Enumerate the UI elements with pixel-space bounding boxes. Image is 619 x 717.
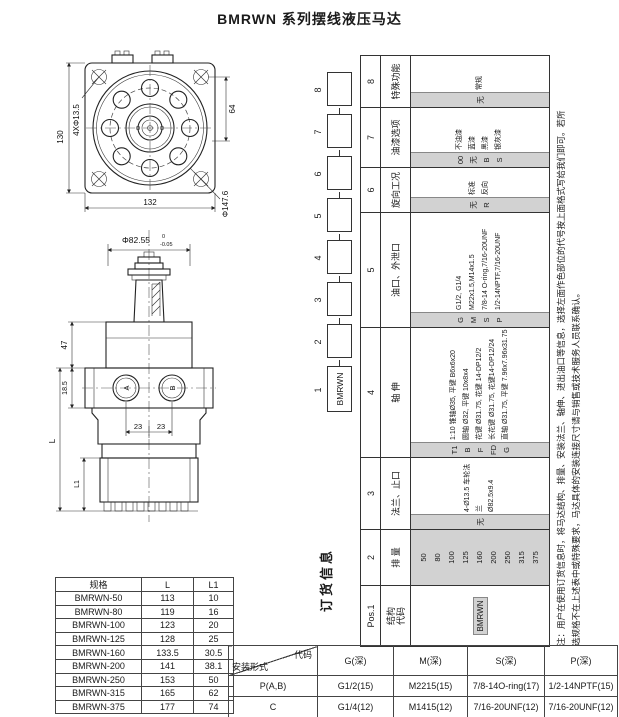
ordering-pos-cell: 4: [361, 328, 381, 457]
spec-model: BMRWN-200: [56, 659, 142, 673]
ordering-pos-cell: 5: [361, 213, 381, 327]
chain-dash: [339, 234, 340, 240]
order-code-box: [327, 114, 352, 148]
ordering-label-cell: 油漆选项: [381, 108, 411, 167]
dim-L: L: [48, 438, 57, 443]
mounting-type: C: [229, 697, 318, 717]
code-value: S: [493, 153, 506, 167]
code-value: B: [480, 153, 493, 167]
spec-row: BMRWN-8011916: [56, 605, 234, 619]
chain-position-number: 7: [313, 115, 323, 149]
code-value: 200: [487, 530, 501, 585]
spec-model: BMRWN-375: [56, 700, 142, 714]
order-code-box: [327, 324, 352, 358]
description-list: 1:10 锥轴Ø35, 平键 B6x6x20圆轴 Ø32, 平键 10x8x4花…: [411, 328, 549, 442]
port-row: CG1/4(12)M1415(12)7/16-20UNF(12)7/16-20U…: [229, 697, 618, 717]
code-description: 长花键 Ø31.75, 花键14-DP12/24: [487, 328, 500, 440]
dim-pilot-tol-upper: 0: [162, 234, 165, 240]
code-description: M22x1.5,M14x1.5: [467, 213, 480, 310]
code-value: FD: [487, 443, 500, 457]
ordering-pos-cell: 6: [361, 168, 381, 212]
dim-pilot-dia: Φ147.6: [221, 190, 230, 217]
spec-row: BMRWN-10012320: [56, 619, 234, 633]
port-size-value: M1415(12): [394, 697, 468, 717]
code-value: 无: [474, 515, 487, 529]
spec-row: BMRWN-31516562: [56, 687, 234, 701]
code-value: 50: [417, 530, 431, 585]
order-code-box: [327, 156, 352, 190]
code-value: P: [493, 313, 506, 327]
code-description: 不油漆: [454, 108, 467, 150]
spec-row: BMRWN-25015350: [56, 673, 234, 687]
code-value: S: [480, 313, 493, 327]
ordering-label-cell: 特殊功能: [381, 56, 411, 107]
code-description: 圆轴 Ø32, 平键 10x8x4: [461, 328, 474, 440]
spec-header-l1: L1: [194, 578, 234, 592]
chain-position-number: 3: [313, 283, 323, 317]
spec-header-row: 规格 L L1: [56, 578, 234, 592]
code-description: 反向: [480, 168, 493, 195]
spec-row: BMRWN-5011310: [56, 592, 234, 606]
port-size-value: M2215(15): [394, 676, 468, 697]
code-strip: 无: [411, 514, 549, 529]
code-value: F: [474, 443, 487, 457]
code-value: 00: [454, 153, 467, 167]
dim-18-5: 18.5: [62, 381, 69, 395]
mounting-type: P(A,B): [229, 676, 318, 697]
code-description: 4-Ø13.5 车轮法兰 Ø82.5x9.4: [462, 458, 498, 512]
code-value: 125: [459, 530, 473, 585]
dim-23-left: 23: [134, 422, 142, 431]
code-value: 160: [473, 530, 487, 585]
code-description: G1/2, G1/4: [454, 213, 467, 310]
dim-23-right: 23: [157, 422, 165, 431]
port-header-m: M(深): [394, 646, 468, 676]
code-description: 标准: [467, 168, 480, 195]
code-list: T1BFFDG: [411, 443, 549, 457]
dim-pilot-value: Φ82.55: [122, 235, 150, 245]
code-description: 直轴 Ø31.75, 平键 7.96x7.96x31.75: [500, 328, 513, 440]
ordering-label-cell: 旋向工况: [381, 168, 411, 212]
ordering-column-8: 8特殊功能无常规: [361, 56, 549, 108]
spec-l1-value: 16: [194, 605, 234, 619]
order-code-box: [327, 72, 352, 106]
ordering-column-2: 2排 量5080100125160200250315375: [361, 530, 549, 586]
top-ports: [112, 51, 173, 63]
code-value: 315: [515, 530, 529, 585]
code-value: 无: [467, 198, 480, 212]
dim-pilot-tol-lower: -0.05: [160, 242, 173, 248]
port-size-value: G1/4(12): [318, 697, 394, 717]
description-list: 不油漆蓝漆黑漆银灰漆: [411, 108, 549, 152]
code-list: 00无BS: [411, 153, 549, 167]
ordering-column-1: Pos.1结构 代码BMRWN: [361, 586, 549, 646]
ordering-section: 订货信息 1BMRWN2345678 Pos.1结构 代码BMRWN2排 量50…: [312, 50, 606, 648]
chain-position-number: 6: [313, 157, 323, 191]
code-value: T1: [448, 443, 461, 457]
ordering-pos-cell: 8: [361, 56, 381, 107]
side-view-drawing: Φ82.55 0 -0.05: [42, 226, 257, 526]
port-row: P(A,B)G1/2(15)M2215(15)7/8-14O-ring(17)1…: [229, 676, 618, 697]
port-size-value: 7/16-20UNF(12): [545, 697, 618, 717]
ordering-label-cell: 油口、外泄口: [381, 213, 411, 327]
dim-pilot: Φ82.55 0 -0.05: [108, 234, 190, 266]
ordering-pos-cell: 3: [361, 458, 381, 529]
ordering-column-5: 5油口、外泄口GMSPG1/2, G1/4M22x1.5,M14x1.57/8-…: [361, 213, 549, 328]
spec-l-value: 177: [142, 700, 194, 714]
spec-model: BMRWN-50: [56, 592, 142, 606]
spec-l1-value: 10: [194, 592, 234, 606]
spec-l-value: 123: [142, 619, 194, 633]
spec-model: BMRWN-80: [56, 605, 142, 619]
ordering-column-7: 7油漆选项00无BS不油漆蓝漆黑漆银灰漆: [361, 108, 549, 168]
spec-l-value: 128: [142, 632, 194, 646]
code-description: 1:10 锥轴Ø35, 平键 B6x6x20: [448, 328, 461, 440]
ordering-label-cell: 结构 代码: [381, 586, 411, 646]
description-list: 常规: [411, 56, 549, 92]
spec-table: 规格 L L1 BMRWN-5011310BMRWN-8011916BMRWN-…: [55, 577, 234, 714]
spec-model: BMRWN-315: [56, 687, 142, 701]
page-title: BMRWN 系列摆线液压马达: [0, 9, 619, 29]
spec-model: BMRWN-160: [56, 646, 142, 660]
ordering-pos-cell: Pos.1: [361, 586, 381, 646]
port-size-value: 7/8-14O-ring(17): [468, 676, 545, 697]
port-header-p: P(深): [545, 646, 618, 676]
port-table-body: 代码 安装形式 G(深) M(深) S(深) P(深) P(A,B)G1/2(1…: [229, 646, 618, 717]
ordering-label-cell: 排 量: [381, 530, 411, 585]
ordering-content-cell: T1BFFDG1:10 锥轴Ø35, 平键 B6x6x20圆轴 Ø32, 平键 …: [411, 328, 549, 457]
ordering-content-cell: 无4-Ø13.5 车轮法兰 Ø82.5x9.4: [411, 458, 549, 529]
code-strip: 00无BS: [411, 152, 549, 167]
ordering-content-cell: BMRWN: [411, 586, 549, 646]
code-list: 无: [411, 515, 549, 529]
code-value: G: [500, 443, 513, 457]
code-strip: T1BFFDG: [411, 442, 549, 457]
port-size-value: G1/2(15): [318, 676, 394, 697]
ordering-column-4: 4轴 伸T1BFFDG1:10 锥轴Ø35, 平键 B6x6x20圆轴 Ø32,…: [361, 328, 549, 458]
chain-position-number: 1: [313, 373, 323, 407]
code-description: 常规: [474, 56, 487, 90]
code-description: 蓝漆: [467, 108, 480, 150]
corner-label-mounting: 安装形式: [232, 660, 268, 673]
spec-row: BMRWN-37517774: [56, 700, 234, 714]
chain-position-number: 2: [313, 325, 323, 359]
spec-l-value: 141: [142, 659, 194, 673]
dim-47: 47: [60, 340, 69, 349]
ordering-content-cell: 00无BS不油漆蓝漆黑漆银灰漆: [411, 108, 549, 167]
order-code-box: [327, 282, 352, 316]
code-value: B: [461, 443, 474, 457]
code-strip: GMSP: [411, 312, 549, 327]
code-value: G: [454, 313, 467, 327]
chain-dash: [339, 108, 340, 114]
code-description: 花键 Ø31.75, 花键 14-DP12/2: [474, 328, 487, 440]
ordering-content-cell: 无常规: [411, 56, 549, 107]
port-size-table: 代码 安装形式 G(深) M(深) S(深) P(深) P(A,B)G1/2(1…: [228, 645, 618, 717]
chain-dash: [339, 360, 340, 366]
ordering-content-cell: 无R标准反向: [411, 168, 549, 212]
chain-dash: [339, 150, 340, 156]
spec-row: BMRWN-12512825: [56, 632, 234, 646]
dimensions: 130 4XΦ13.5 64 132 Φ147.6: [56, 63, 237, 217]
spec-model: BMRWN-100: [56, 619, 142, 633]
code-description: 1/2-14NPTF,7/16-20UNF: [493, 213, 506, 310]
code-strip: 无R: [411, 197, 549, 212]
port-header-s: S(深): [468, 646, 545, 676]
port-header-g: G(深): [318, 646, 394, 676]
displacement-code-list: 5080100125160200250315375: [411, 530, 549, 585]
spec-l-value: 133.5: [142, 646, 194, 660]
chain-dash: [339, 318, 340, 324]
code-description: 黑漆: [480, 108, 493, 150]
order-code-chain: 1BMRWN2345678: [312, 50, 358, 648]
spec-l1-value: 25: [194, 632, 234, 646]
code-value: 250: [501, 530, 515, 585]
description-list: G1/2, G1/4M22x1.5,M14x1.57/8-14 O-ring,7…: [411, 213, 549, 312]
chain-dash: [339, 276, 340, 282]
spec-l-value: 113: [142, 592, 194, 606]
ordering-content-cell: GMSPG1/2, G1/4M22x1.5,M14x1.57/8-14 O-ri…: [411, 213, 549, 327]
code-value: 80: [431, 530, 445, 585]
spec-header-l: L: [142, 578, 194, 592]
port-header-row: 代码 安装形式 G(深) M(深) S(深) P(深): [229, 646, 618, 676]
dim-132: 132: [143, 198, 157, 207]
ordering-label-cell: 法兰、止口: [381, 458, 411, 529]
diagonal-header-cell: 代码 安装形式: [229, 646, 318, 676]
spec-l-value: 153: [142, 673, 194, 687]
catalog-page: BMRWN 系列摆线液压马达: [0, 0, 619, 717]
corner-label-code: 代码: [294, 648, 312, 661]
code-value: M: [467, 313, 480, 327]
code-strip: 无: [411, 92, 549, 107]
code-value: 无: [474, 93, 487, 107]
code-list: 无R: [411, 198, 549, 212]
port-a-label: A: [122, 385, 131, 390]
code-description: 银灰漆: [493, 108, 506, 150]
spec-l-value: 165: [142, 687, 194, 701]
code-list: GMSP: [411, 313, 549, 327]
code-value: 100: [445, 530, 459, 585]
spec-l1-value: 20: [194, 619, 234, 633]
ordering-pos-cell: 2: [361, 530, 381, 585]
dim-64: 64: [228, 104, 237, 113]
chain-position-number: 5: [313, 199, 323, 233]
spec-model: BMRWN-125: [56, 632, 142, 646]
structure-code-value: BMRWN: [473, 597, 488, 636]
code-value: 375: [529, 530, 543, 585]
spec-table-body: 规格 L L1 BMRWN-5011310BMRWN-8011916BMRWN-…: [56, 578, 234, 714]
front-view-drawing: 130 4XΦ13.5 64 132 Φ147.6: [52, 42, 257, 227]
spec-row: BMRWN-20014138.1: [56, 659, 234, 673]
description-list: 4-Ø13.5 车轮法兰 Ø82.5x9.4: [411, 458, 549, 514]
ordering-table: Pos.1结构 代码BMRWN2排 量508010012516020025031…: [360, 55, 550, 647]
code-list: 无: [411, 93, 549, 107]
keyway-hatch: [152, 282, 160, 316]
chain-position-number: 8: [313, 73, 323, 107]
side-dimensions: 47 18.5 L 23 23 L1: [48, 322, 172, 511]
dim-130: 130: [56, 130, 65, 144]
description-list: 标准反向: [411, 168, 549, 197]
order-code-box: [327, 198, 352, 232]
ordering-label-cell: 轴 伸: [381, 328, 411, 457]
ordering-content-cell: 5080100125160200250315375: [411, 530, 549, 585]
ordering-pos-cell: 7: [361, 108, 381, 167]
dim-bolt-holes: 4XΦ13.5: [72, 104, 81, 136]
port-size-value: 1/2-14NPTF(15): [545, 676, 618, 697]
ordering-column-6: 6旋向工况无R标准反向: [361, 168, 549, 213]
order-code-box: BMRWN: [327, 366, 352, 412]
spec-row: BMRWN-160133.530.5: [56, 646, 234, 660]
ordering-note-line2: 选规格不在上述表中或特殊要求，马达具体的安装连接尺寸请与销售或技术服务人员联系确…: [571, 52, 581, 646]
chain-dash: [339, 192, 340, 198]
spec-header-model: 规格: [56, 578, 142, 592]
port-size-value: 7/16-20UNF(12): [468, 697, 545, 717]
ordering-note-line1: 注：用户在使用订货信息时，将马达结构、排量、安装法兰、轴伸、进出油口等信息，选择…: [556, 52, 566, 646]
code-value: R: [480, 198, 493, 212]
code-description: 7/8-14 O-ring,7/16-20UNF: [480, 213, 493, 310]
ordering-column-3: 3法兰、止口无4-Ø13.5 车轮法兰 Ø82.5x9.4: [361, 458, 549, 530]
order-code-box: [327, 240, 352, 274]
spec-model: BMRWN-250: [56, 673, 142, 687]
spec-l-value: 119: [142, 605, 194, 619]
code-value: 无: [467, 153, 480, 167]
port-b-label: B: [168, 385, 177, 390]
dim-L1: L1: [74, 480, 81, 488]
chain-position-number: 4: [313, 241, 323, 275]
